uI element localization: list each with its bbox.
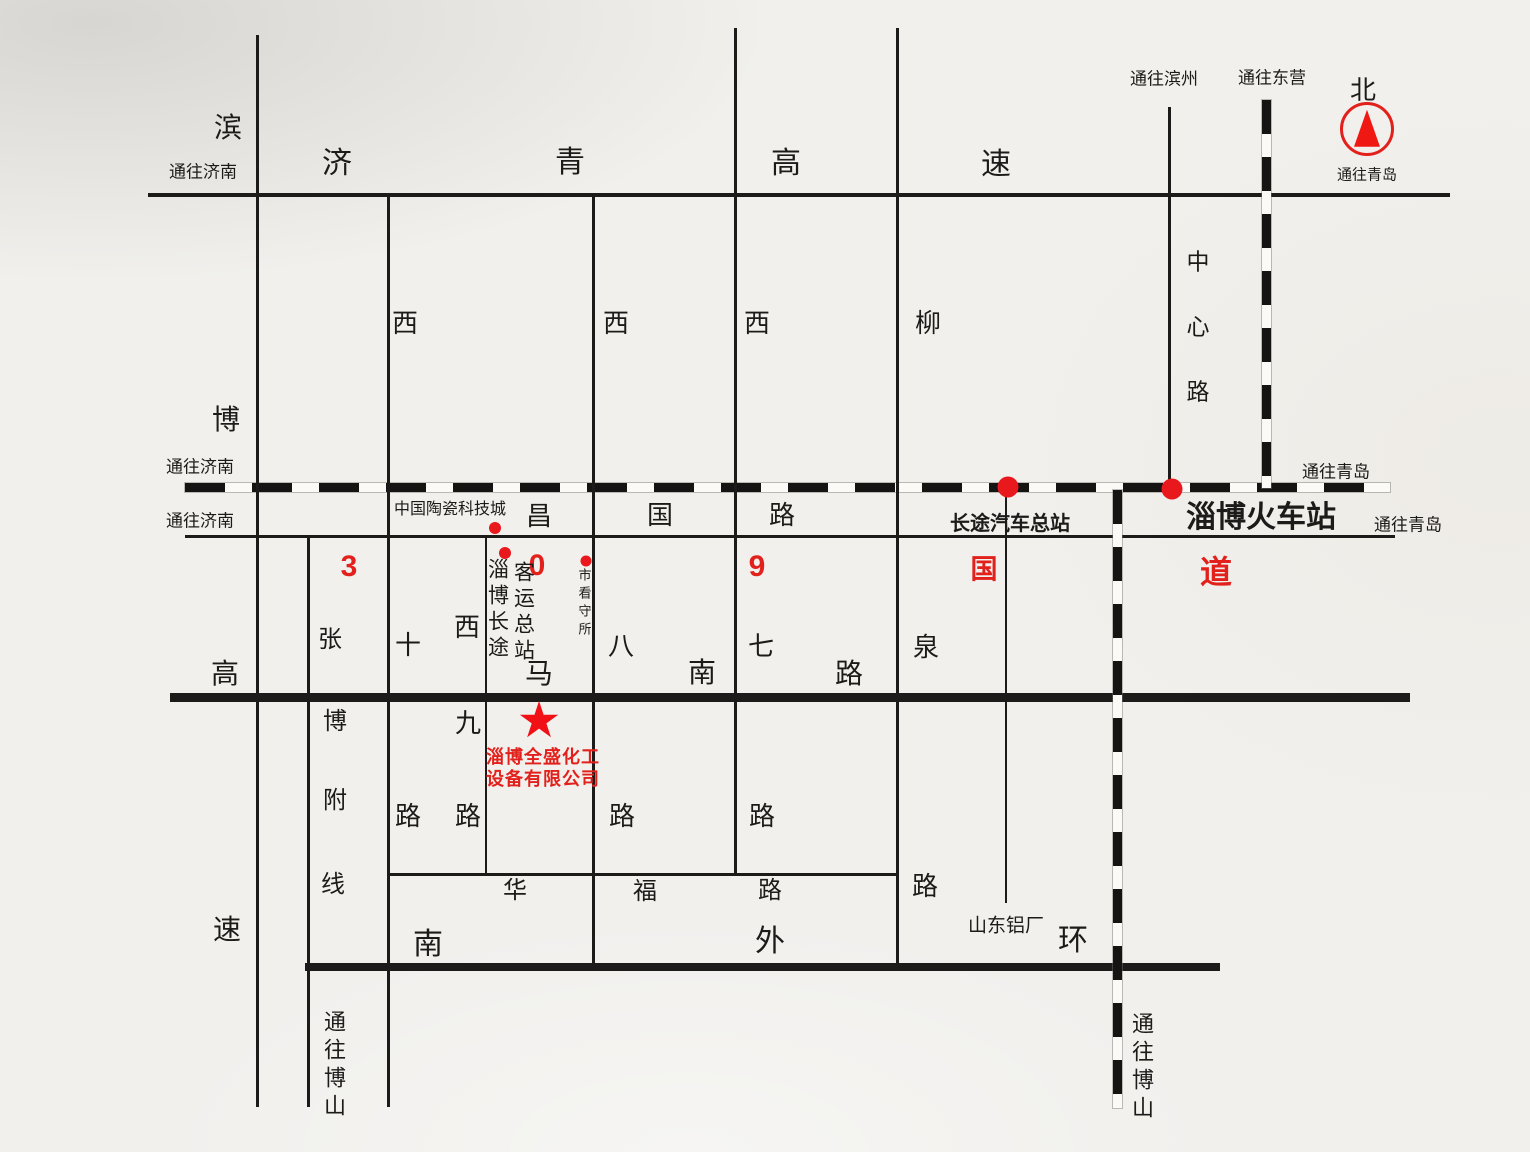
marker-dot-bus-terminal: [499, 547, 511, 559]
direction-to-qingdao-changguo: 通往青岛: [1374, 517, 1442, 534]
road-name-char: 路: [758, 879, 782, 903]
direction-to-jinan-railway: 通往济南: [166, 459, 234, 476]
road-name-char: 西: [392, 310, 418, 336]
road-xi-shi-line: [387, 195, 390, 1107]
road-name-char: 昌: [526, 503, 552, 529]
road-name-char: 泉: [913, 634, 939, 660]
road-name-char: 博: [323, 710, 347, 734]
landmark-bus-station: 长途汽车总站: [950, 514, 1070, 534]
road-name-char: 博: [212, 406, 240, 434]
road-name-char: 十: [395, 632, 421, 658]
road-name-char: 柳: [915, 310, 941, 336]
road-name-char: 西: [603, 310, 629, 336]
road-manan-line: [170, 693, 1410, 702]
road-name-char: 路: [769, 502, 795, 528]
road-name-char: 南: [688, 659, 716, 687]
road-huafu-line: [388, 873, 898, 876]
map-canvas: 济 青 高 速 滨 博 高 速 张 博 附 线 西 十 路 西 九 路 西 八 …: [0, 0, 1530, 1152]
route-309-char: 道: [1200, 556, 1232, 588]
road-bus-station-access-line: [1005, 488, 1007, 903]
road-name-char: 福: [633, 880, 657, 904]
road-name-char: 路: [912, 873, 938, 899]
direction-to-jinan-changguo: 通往济南: [166, 513, 234, 530]
road-name-char: 速: [213, 916, 241, 944]
railway-horizontal-line: [185, 483, 1390, 492]
road-name-char: 八: [608, 633, 634, 659]
north-label: 北: [1350, 77, 1376, 103]
direction-to-dongying: 通往东营: [1238, 70, 1306, 87]
road-name-char: 路: [609, 803, 635, 829]
road-xi-qi-line: [734, 28, 737, 875]
road-name-char: 九: [455, 710, 481, 736]
road-name-char: 路: [749, 803, 775, 829]
landmark-ceramic-city: 中国陶瓷科技城: [394, 502, 506, 518]
road-name-char: 路: [1187, 381, 1210, 404]
road-name-char: 张: [318, 628, 342, 652]
road-name-char: 路: [835, 660, 863, 688]
marker-dot-railway-station: [1162, 479, 1183, 500]
company-name-line1: 淄博全盛化工: [486, 748, 600, 766]
direction-to-qingdao-top: 通往青岛: [1337, 168, 1397, 183]
direction-to-binzhou: 通往滨州: [1130, 71, 1198, 88]
direction-to-jinan-top: 通往济南: [169, 164, 237, 181]
road-name-char: 路: [455, 803, 481, 829]
road-name-char: 中: [1187, 251, 1210, 274]
landmark-bus-terminal-col1: 淄博长途: [487, 558, 508, 662]
road-zhangbo-branch-line: [307, 537, 310, 1107]
road-name-char: 国: [647, 502, 673, 528]
road-name-char: 外: [755, 927, 785, 957]
landmark-detention-house: 市看守所: [578, 568, 591, 640]
road-changguo-line: [185, 535, 1395, 538]
route-309-char: 3: [341, 552, 358, 582]
direction-to-boshan-left: 通往博山: [322, 1010, 344, 1122]
marker-dot-ceramic-city: [489, 522, 501, 534]
road-binbo-expressway-line: [256, 35, 259, 1107]
route-309-char: 9: [749, 552, 766, 582]
road-zhongxin-line: [1168, 107, 1171, 490]
landmark-bus-terminal-col2: 客运总站: [513, 561, 534, 665]
road-name-char: 西: [744, 310, 770, 336]
company-name-line2: 设备有限公司: [486, 770, 600, 788]
marker-dot-bus-station: [998, 477, 1019, 498]
road-nan-waihuan-line: [305, 963, 1220, 971]
road-name-char: 济: [322, 149, 352, 179]
road-name-char: 西: [454, 614, 480, 640]
road-name-char: 南: [413, 930, 443, 960]
railway-branch-dongying-line: [1262, 100, 1271, 488]
direction-to-qingdao-railway: 通往青岛: [1302, 464, 1370, 481]
road-name-char: 青: [555, 148, 585, 178]
landmark-railway-station: 淄博火车站: [1186, 503, 1336, 533]
road-name-char: 华: [503, 879, 527, 903]
road-name-char: 速: [981, 150, 1011, 180]
company-location-star-icon: ★: [517, 695, 562, 745]
road-name-char: 附: [323, 789, 347, 813]
road-name-char: 七: [748, 633, 774, 659]
road-name-char: 高: [771, 149, 801, 179]
marker-dot-detention-house: [581, 556, 592, 567]
road-name-char: 滨: [214, 114, 242, 142]
road-liuquan-line: [896, 28, 899, 967]
direction-to-boshan-railway: 通往博山: [1130, 1012, 1152, 1124]
road-jiqing-expressway-line: [148, 193, 1450, 197]
road-xi-ba-line: [592, 195, 595, 967]
road-name-char: 心: [1187, 316, 1210, 339]
landmark-aluminum-plant: 山东铝厂: [968, 917, 1044, 936]
compass-north-arrow-icon: [1354, 110, 1380, 147]
road-name-char: 路: [395, 803, 421, 829]
road-name-char: 高: [211, 660, 239, 688]
road-name-char: 线: [321, 873, 345, 897]
railway-branch-boshan-line: [1113, 490, 1122, 1108]
route-309-char: 国: [971, 557, 998, 584]
road-name-char: 环: [1058, 926, 1088, 956]
